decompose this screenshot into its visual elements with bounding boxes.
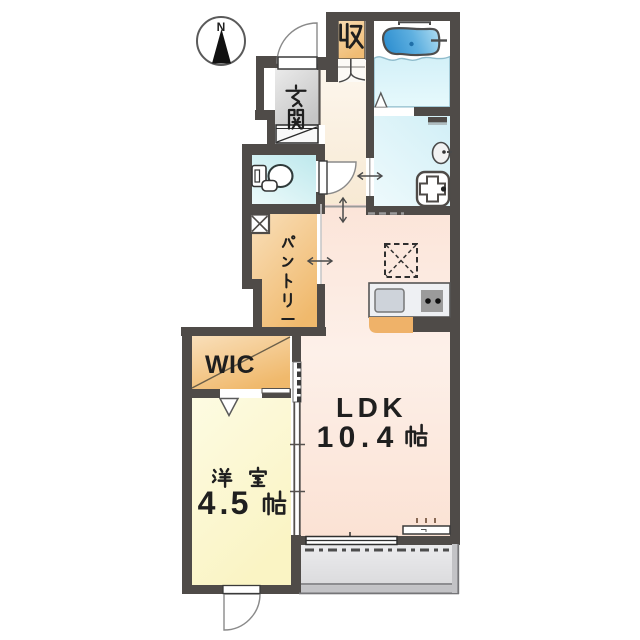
- svg-text:0: 0: [339, 421, 356, 454]
- svg-text:1: 1: [317, 421, 334, 454]
- svg-text:.: .: [220, 485, 229, 521]
- svg-text:4: 4: [377, 421, 394, 454]
- svg-text:LDK: LDK: [336, 392, 407, 423]
- svg-text:N: N: [217, 20, 226, 34]
- svg-text:WIC: WIC: [205, 351, 255, 379]
- svg-text:5: 5: [231, 485, 249, 521]
- svg-text:.: .: [361, 421, 369, 454]
- svg-text:4: 4: [198, 485, 216, 521]
